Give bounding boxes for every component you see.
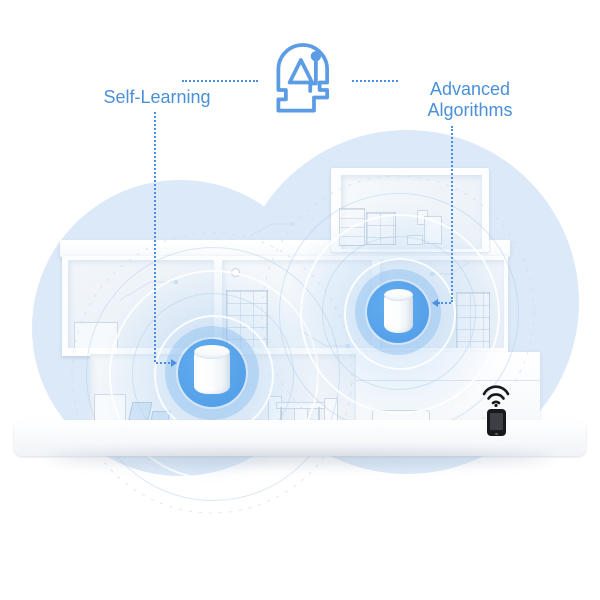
mesh-router-left-top [194, 345, 230, 359]
smartphone-home-button [495, 433, 498, 435]
callout-line-left-horizontal [182, 80, 258, 82]
label-advanced-algorithms: Advanced Algorithms [402, 79, 538, 121]
callout-line-right-horizontal [352, 80, 398, 82]
smartphone-icon [487, 409, 506, 436]
label-self-learning: Self-Learning [98, 87, 216, 108]
smartphone-screen [490, 413, 503, 430]
callout-arrow-right [432, 299, 438, 307]
callout-elbow-right [438, 302, 451, 304]
ai-head-icon [254, 30, 344, 120]
wifi-signal-icon [481, 385, 511, 407]
mesh-router-right-top [384, 289, 413, 301]
callout-line-left-vertical [154, 112, 156, 362]
callout-line-right-vertical [451, 126, 453, 302]
plinth-shadow [48, 452, 552, 464]
callout-elbow-left [156, 362, 170, 364]
callout-arrow-left [171, 359, 177, 367]
illustration-canvas: Self-Learning Advanced Algorithms [0, 0, 600, 600]
